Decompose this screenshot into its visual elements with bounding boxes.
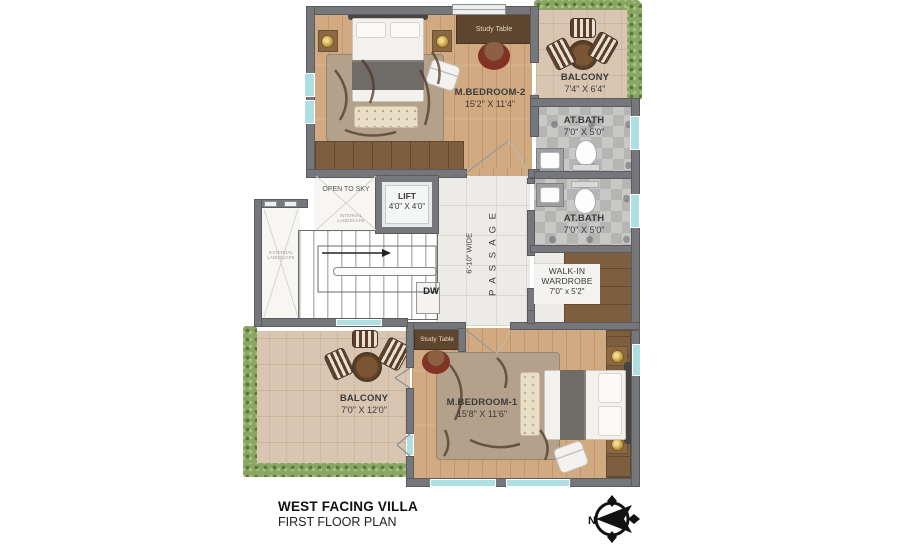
study-table-top: Study Table — [456, 14, 532, 44]
pillow — [598, 406, 622, 436]
internal-landscape-label: INTERNAL LANDSCAPE — [330, 213, 372, 224]
pillow — [598, 373, 622, 403]
room-name: M.BEDROOM-1 — [420, 398, 544, 409]
wardrobe-strip — [314, 141, 464, 171]
window — [264, 201, 277, 207]
wall — [254, 318, 408, 327]
room-name: AT.BATH — [543, 214, 625, 225]
room-dims: 4'0" X 4'0" — [378, 202, 436, 211]
hedge-bottom — [243, 463, 413, 477]
study-table-bottom-label: Study Table — [420, 336, 454, 343]
bed-blanket — [352, 60, 424, 90]
wall — [527, 310, 535, 324]
window — [430, 479, 496, 487]
window — [632, 344, 641, 376]
wall — [527, 178, 535, 184]
bath1-label: AT.BATH 7'0" X 5'0" — [543, 116, 625, 137]
dw-label: DW — [420, 287, 442, 298]
toilet-tank — [572, 164, 600, 171]
wall — [254, 199, 308, 208]
toilet — [574, 188, 596, 214]
villa-title: WEST FACING VILLA — [278, 499, 418, 514]
external-landscape-label: EXTERNAL LANDSCAPE — [262, 250, 300, 261]
wall — [530, 6, 539, 63]
toilet-tank — [571, 181, 599, 188]
wall — [406, 322, 414, 368]
window — [630, 116, 640, 150]
bath2-label: AT.BATH 7'0" X 5'0" — [543, 214, 625, 235]
balcony-table — [352, 352, 382, 382]
wall — [406, 388, 414, 434]
stair-railing — [333, 267, 437, 276]
window — [304, 100, 315, 124]
room-dims: 15'8" X 11'6" — [420, 409, 544, 419]
room-dims: 7'0" X 5'0" — [543, 127, 625, 137]
lamp-icon — [436, 35, 449, 48]
room-name: M.BEDROOM-2 — [428, 88, 552, 99]
hedge-left — [243, 326, 257, 476]
bed-bench — [354, 106, 418, 128]
compass-north-label: N — [588, 515, 596, 527]
lift-label: LIFT 4'0" X 4'0" — [378, 192, 436, 211]
landscape-line: LANDSCAPE — [330, 218, 372, 223]
window — [336, 319, 382, 326]
wall — [254, 199, 262, 327]
passage-label: P A S S A G E — [489, 198, 500, 308]
title-block: WEST FACING VILLA FIRST FLOOR PLAN — [278, 499, 418, 529]
room-dims: 7'0" x 5'2" — [534, 287, 600, 296]
bed-blanket — [560, 370, 586, 440]
bedroom2-label: M.BEDROOM-2 15'2" X 11'4" — [428, 88, 552, 109]
wall — [534, 171, 632, 179]
window — [304, 73, 315, 97]
room-name: BALCONY — [545, 73, 625, 84]
wall — [530, 245, 632, 253]
room-dims: 7'0" X 5'0" — [543, 225, 625, 235]
window — [630, 194, 640, 228]
balcony-chair — [352, 330, 378, 348]
balcony-bottom-label: BALCONY 7'0" X 12'0" — [322, 394, 406, 415]
study-table-bottom: Study Table — [414, 328, 460, 350]
wall — [406, 322, 466, 330]
study-table-top-label: Study Table — [476, 26, 512, 33]
window — [506, 479, 570, 487]
balcony-top-label: BALCONY 7'4" X 6'4" — [545, 73, 625, 94]
toilet — [575, 140, 597, 166]
lamp-icon — [321, 35, 334, 48]
hedge-right — [627, 2, 642, 100]
passage-width-label: 6'-10" WIDE — [466, 208, 475, 298]
sink — [540, 152, 560, 169]
wall — [458, 328, 466, 352]
room-dims: 15'2" X 11'4" — [428, 99, 552, 109]
bedroom1-label: M.BEDROOM-1 15'8" X 11'6" — [420, 398, 544, 419]
passage-floor — [436, 176, 530, 326]
room-name: LIFT — [378, 192, 436, 202]
pillow — [356, 22, 386, 38]
room-name: AT.BATH — [543, 116, 625, 127]
landscape-strip — [262, 207, 300, 319]
lamp-icon — [611, 350, 624, 363]
compass-north-icon: N — [588, 495, 640, 543]
window — [406, 434, 414, 456]
plan-subtitle: FIRST FLOOR PLAN — [278, 515, 418, 529]
study-chair — [422, 350, 450, 374]
room-name: BALCONY — [322, 394, 406, 405]
room-name: WARDROBE — [534, 277, 600, 287]
window — [284, 201, 297, 207]
landscape-line: LANDSCAPE — [262, 255, 300, 260]
room-dims: 7'4" X 6'4" — [545, 84, 625, 94]
floor-plan: Study Table Study Table — [0, 0, 900, 550]
study-chair — [478, 42, 510, 70]
sink — [540, 187, 560, 203]
open-to-sky-label: OPEN TO SKY — [314, 186, 378, 194]
room-dims: 7'0" X 12'0" — [322, 405, 406, 415]
wardrobe-label: WALK-IN WARDROBE 7'0" x 5'2" — [534, 267, 600, 296]
pillow — [390, 22, 420, 38]
balcony-chair — [570, 18, 596, 38]
window — [452, 4, 506, 15]
hedge-top — [534, 0, 640, 10]
